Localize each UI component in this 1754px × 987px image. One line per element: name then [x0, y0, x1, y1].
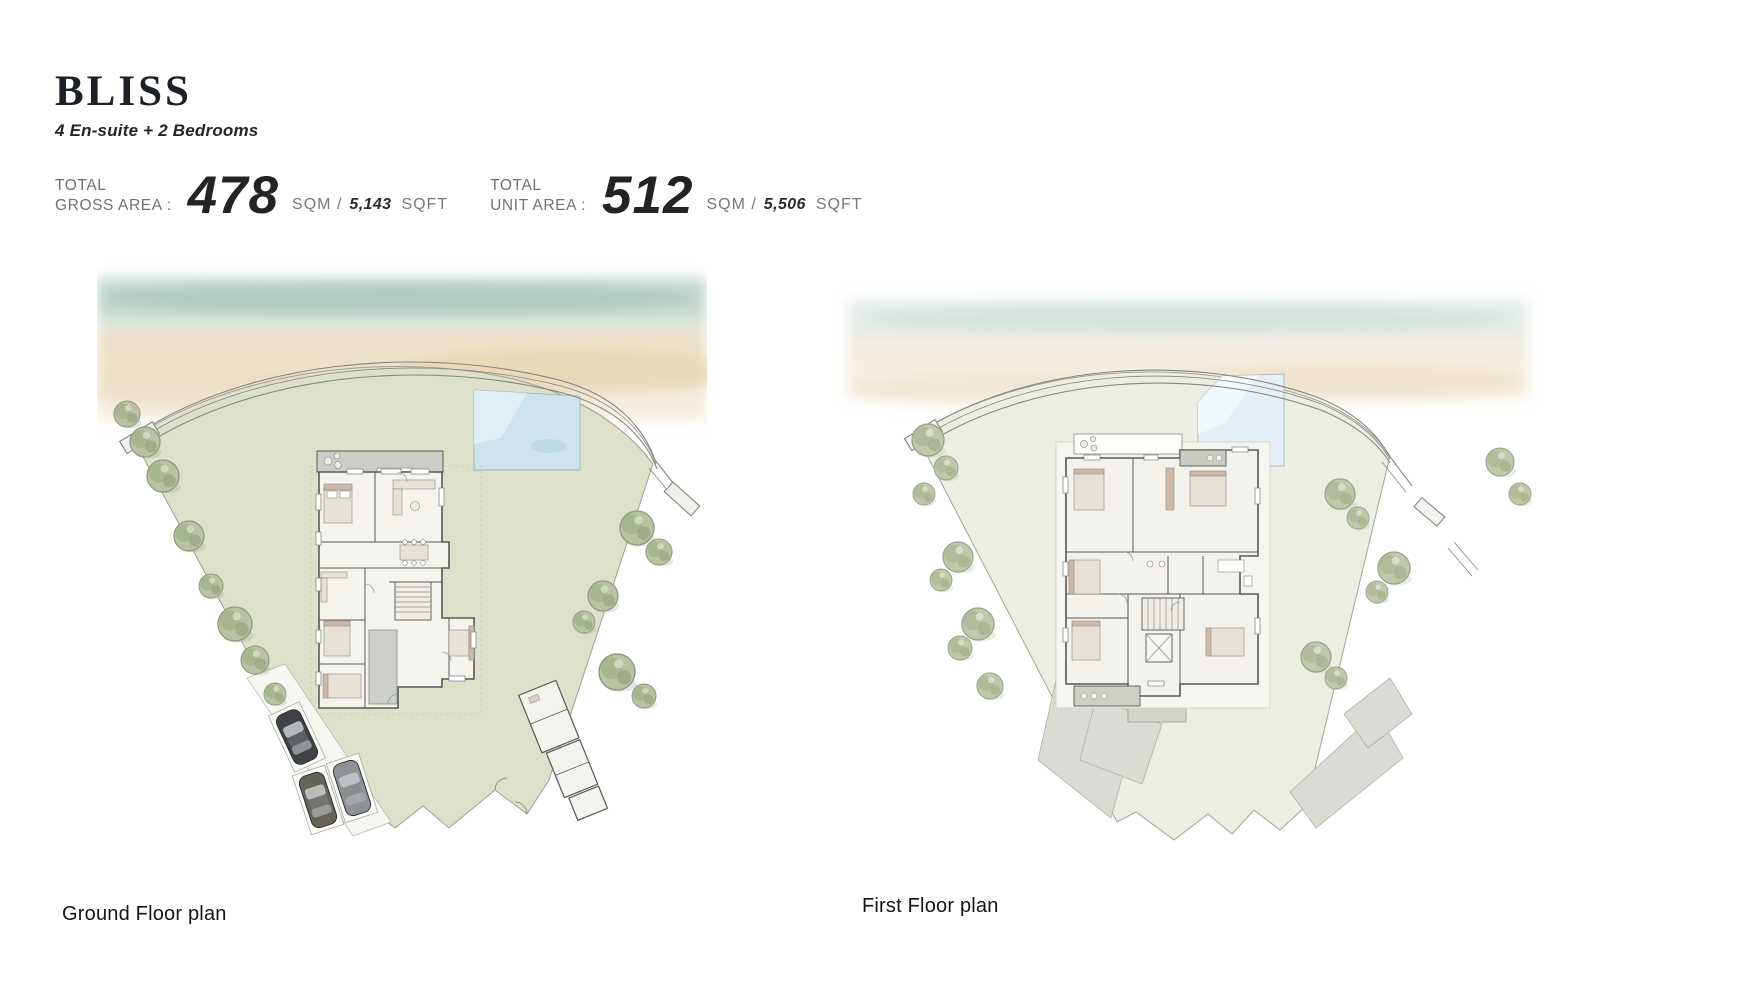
tree [1378, 552, 1412, 586]
ground-floor-caption: Ground Floor plan [62, 903, 227, 926]
stat-unit-area: TOTAL UNIT AREA : 512 SQM /5,506SQFT [490, 175, 862, 217]
tree [943, 542, 975, 574]
inner-courtyard [369, 630, 397, 704]
page-subtitle: 4 En-suite + 2 Bedrooms [55, 121, 258, 141]
stat-label: TOTAL UNIT AREA : [490, 176, 586, 218]
villa-first-floor [1056, 434, 1270, 708]
tree [1486, 448, 1515, 477]
page-title: BLISS [55, 70, 258, 113]
elevator [1146, 634, 1172, 662]
tree [948, 636, 973, 661]
tree [977, 673, 1004, 700]
swimming-pool [474, 390, 580, 470]
stat-value: 478 [188, 175, 279, 217]
tree [913, 483, 936, 506]
tree [646, 539, 673, 566]
area-stats: TOTAL GROSS AREA : 478 SQM /5,143SQFT TO… [55, 175, 905, 217]
stat-unit: SQM /5,143SQFT [292, 196, 448, 214]
first-floor-plan-figure [828, 262, 1546, 848]
brand-block: BLISS 4 En-suite + 2 Bedrooms [55, 70, 258, 141]
front-balcony [1074, 434, 1182, 454]
pier [1414, 498, 1445, 526]
stairs [1142, 598, 1184, 630]
stat-label: TOTAL GROSS AREA : [55, 176, 172, 218]
tree [599, 654, 637, 692]
tree [930, 569, 953, 592]
ground-floor-plan-figure [97, 232, 707, 844]
brochure-page: BLISS 4 En-suite + 2 Bedrooms TOTAL GROS… [0, 0, 1754, 987]
tree [1366, 581, 1389, 604]
tree [1509, 483, 1532, 506]
stairs [395, 582, 431, 620]
first-floor-caption: First Floor plan [862, 895, 999, 918]
stat-unit: SQM /5,506SQFT [706, 196, 862, 214]
pier [664, 482, 699, 516]
stat-gross-area: TOTAL GROSS AREA : 478 SQM /5,143SQFT [55, 175, 448, 217]
stat-value: 512 [602, 175, 693, 217]
tree [962, 608, 996, 642]
tree [632, 684, 657, 709]
